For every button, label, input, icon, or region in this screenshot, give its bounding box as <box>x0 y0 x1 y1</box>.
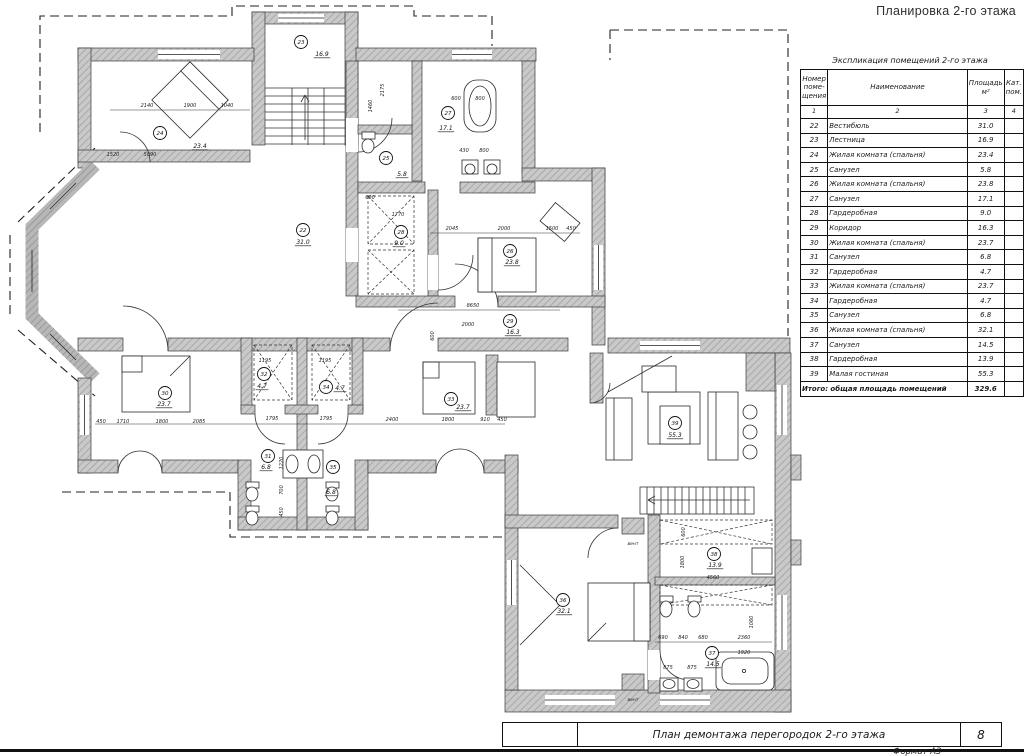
schedule-cell <box>1004 148 1023 163</box>
dim-label: 600 <box>365 195 375 201</box>
room-area-label: 5.8 <box>397 171 407 178</box>
room-num-label: 33 <box>448 397 455 403</box>
schedule-row: 26Жилая комната (спальня)23.8 <box>801 177 1024 192</box>
schedule-cell: Гардеробная <box>828 206 968 221</box>
title-block-empty-cell <box>503 723 578 746</box>
schedule-row: 31Санузел6.8 <box>801 250 1024 265</box>
room-area-label: 23.7 <box>456 404 470 411</box>
col-index: 4 <box>1004 106 1023 119</box>
col-header-number: Номер поме- щения <box>801 70 828 106</box>
schedule-cell: Лестница <box>828 133 968 148</box>
room-label: 2231.0 <box>295 224 311 247</box>
schedule-row: 25Санузел5.8 <box>801 162 1024 177</box>
dim-label: 2175 <box>380 84 386 97</box>
dim-label: 1800 <box>680 556 686 569</box>
dim-label: 1060 <box>749 616 755 629</box>
dim-label: 4560 <box>707 575 720 581</box>
schedule-cell: 16.3 <box>967 221 1004 236</box>
staircase-lower <box>640 487 754 514</box>
schedule-cell <box>1004 206 1023 221</box>
schedule-cell: 37 <box>801 337 828 352</box>
room-label: 324.7 <box>256 368 271 391</box>
dim-label: 450 <box>96 419 106 425</box>
schedule-cell: 55.3 <box>967 367 1004 382</box>
schedule-row: 23Лестница16.9 <box>801 133 1024 148</box>
room-area-label: 32.1 <box>557 608 570 615</box>
schedule-cell: 30 <box>801 235 828 250</box>
schedule-row: 27Санузел17.1 <box>801 191 1024 206</box>
room-area-label: 31.0 <box>296 239 310 246</box>
schedule-cell: Гардеробная <box>828 294 968 309</box>
dim-label: 690 <box>658 635 668 641</box>
room-area-label: 23.8 <box>505 259 519 266</box>
schedule-row: 30Жилая комната (спальня)23.7 <box>801 235 1024 250</box>
schedule-cell: 23 <box>801 133 828 148</box>
dim-label: 600 <box>430 331 436 341</box>
room-label: 255.8 <box>380 152 409 179</box>
schedule-cell: Гардеробная <box>828 352 968 367</box>
schedule-cell: 39 <box>801 367 828 382</box>
vent-label: вент <box>628 698 639 703</box>
schedule-cell: 14.5 <box>967 337 1004 352</box>
schedule-total-row: Итого: общая площадь помещений329.6 <box>801 381 1024 396</box>
room-area-label: 4.7 <box>257 383 267 390</box>
schedule-cell: 29 <box>801 221 828 236</box>
dim-label: 1500 <box>546 226 559 232</box>
room-area-label: 23.4 <box>193 143 207 150</box>
room-area-label: 6.8 <box>326 489 336 496</box>
schedule-cell: 4.7 <box>967 294 1004 309</box>
schedule-cell: 5.8 <box>967 162 1004 177</box>
schedule-row: 32Гардеробная4.7 <box>801 264 1024 279</box>
schedule-cell: Санузел <box>828 162 968 177</box>
schedule-cell: 24 <box>801 148 828 163</box>
schedule-cell: Жилая комната (спальня) <box>828 235 968 250</box>
dim-label: 450 <box>497 417 507 423</box>
schedule-cell: Вестибюль <box>828 119 968 134</box>
schedule-cell: 32.1 <box>967 323 1004 338</box>
schedule-cell: 22 <box>801 119 828 134</box>
room-num-label: 29 <box>507 319 514 325</box>
schedule-cell: Санузел <box>828 337 968 352</box>
dim-label: 800 <box>479 148 489 154</box>
schedule-cell: 25 <box>801 162 828 177</box>
schedule-body: 22Вестибюль31.023Лестница16.924Жилая ком… <box>801 119 1024 397</box>
dim-label: 2000 <box>462 322 475 328</box>
room-num-label: 26 <box>507 249 514 255</box>
schedule-cell: 23.8 <box>967 177 1004 192</box>
room-num-label: 23 <box>298 40 305 46</box>
schedule-row: 35Санузел6.8 <box>801 308 1024 323</box>
schedule-cell: Жилая комната (спальня) <box>828 279 968 294</box>
room-label: 344.7 <box>320 381 347 394</box>
room-num-label: 37 <box>709 651 716 657</box>
schedule-row: 24Жилая комната (спальня)23.4 <box>801 148 1024 163</box>
dim-label: 450 <box>566 226 576 232</box>
col-header-area: Площадь м² <box>967 70 1004 106</box>
schedule-cell: 27 <box>801 191 828 206</box>
dim-label: 1520 <box>107 152 120 158</box>
room-num-label: 28 <box>398 230 405 236</box>
schedule-cell <box>1004 119 1023 134</box>
schedule-cell: 31.0 <box>967 119 1004 134</box>
schedule-row: 28Гардеробная9.0 <box>801 206 1024 221</box>
room-label: 316.8 <box>260 450 275 472</box>
dim-label: 2360 <box>738 635 751 641</box>
schedule-row: 29Коридор16.3 <box>801 221 1024 236</box>
schedule-cell <box>1004 294 1023 309</box>
schedule-cell: 28 <box>801 206 828 221</box>
dim-label: 875 <box>687 665 697 671</box>
schedule-cell: Жилая комната (спальня) <box>828 148 968 163</box>
dim-label: 1795 <box>320 416 333 422</box>
schedule-cell <box>1004 337 1023 352</box>
dim-label: 1800 <box>156 419 169 425</box>
dim-label: 2045 <box>446 226 459 232</box>
dim-label: 1220 <box>279 457 285 470</box>
schedule-cell: 31 <box>801 250 828 265</box>
dim-label: 1040 <box>221 103 234 109</box>
schedule-cell: Жилая комната (спальня) <box>828 177 968 192</box>
room-num-label: 32 <box>261 372 268 378</box>
dim-label: 1900 <box>184 103 197 109</box>
schedule-cell: Санузел <box>828 191 968 206</box>
schedule-cell: Санузел <box>828 308 968 323</box>
schedule-cell: Жилая комната (спальня) <box>828 323 968 338</box>
dim-label: 1920 <box>738 650 751 656</box>
schedule-cell <box>1004 191 1023 206</box>
schedule-cell: 32 <box>801 264 828 279</box>
dim-label: 875 <box>663 665 673 671</box>
dim-label: 450 <box>279 507 285 517</box>
schedule-cell <box>1004 235 1023 250</box>
schedule-cell: 23.7 <box>967 279 1004 294</box>
room-label: 2916.3 <box>504 315 522 337</box>
total-value: 329.6 <box>967 381 1004 396</box>
dim-label: 840 <box>678 635 688 641</box>
schedule-cell <box>1004 162 1023 177</box>
room-area-label: 16.9 <box>315 51 329 58</box>
room-area-label: 23.7 <box>157 401 171 408</box>
room-label: 2717.1 <box>438 107 455 133</box>
dim-label: 1770 <box>392 212 405 218</box>
schedule-cell <box>1004 352 1023 367</box>
schedule-row: 22Вестибюль31.0 <box>801 119 1024 134</box>
dim-label: 1460 <box>368 100 374 113</box>
schedule-cell: 34 <box>801 294 828 309</box>
total-label: Итого: общая площадь помещений <box>801 381 968 396</box>
schedule-cell <box>1004 308 1023 323</box>
room-area-label: 6.8 <box>261 464 271 471</box>
schedule-cell <box>1004 177 1023 192</box>
dim-label: 8650 <box>467 303 480 309</box>
room-num-label: 36 <box>560 598 567 604</box>
room-area-label: 16.3 <box>506 329 520 336</box>
room-num-label: 25 <box>383 156 390 162</box>
room-schedule-table: Номер поме- щения Наименование Площадь м… <box>800 69 1024 397</box>
dim-label: 800 <box>475 96 485 102</box>
dashed-outline-group <box>10 6 788 537</box>
schedule-cell: 17.1 <box>967 191 1004 206</box>
schedule-row: 37Санузел14.5 <box>801 337 1024 352</box>
title-block: План демонтажа перегородок 2-го этажа 8 <box>502 722 1002 747</box>
room-label: 3813.9 <box>707 548 723 570</box>
room-area-label: 9.0 <box>394 240 404 247</box>
col-header-name: Наименование <box>828 70 968 106</box>
schedule-cell <box>1004 381 1023 396</box>
schedule-cell <box>1004 250 1023 265</box>
room-num-label: 30 <box>162 391 169 397</box>
room-num-label: 35 <box>330 465 337 471</box>
room-area-label: 17.1 <box>439 125 452 132</box>
schedule-row: 38Гардеробная13.9 <box>801 352 1024 367</box>
room-num-label: 22 <box>300 228 307 234</box>
room-area-label: 55.3 <box>668 432 682 439</box>
room-num-label: 34 <box>323 385 330 391</box>
sheet-number: 8 <box>960 723 1001 746</box>
schedule-row: 33Жилая комната (спальня)23.7 <box>801 279 1024 294</box>
schedule-cell: 23.4 <box>967 148 1004 163</box>
schedule-cell: 26 <box>801 177 828 192</box>
vent-label: вент <box>628 542 639 547</box>
schedule-cell: 6.8 <box>967 308 1004 323</box>
dim-label: 430 <box>459 148 469 154</box>
schedule-row: 34Гардеробная4.7 <box>801 294 1024 309</box>
dim-label: 910 <box>480 417 490 423</box>
room-num-label: 27 <box>445 111 452 117</box>
schedule-cell: 13.9 <box>967 352 1004 367</box>
schedule-row: 36Жилая комната (спальня)32.1 <box>801 323 1024 338</box>
col-index: 2 <box>828 106 968 119</box>
schedule-cell: 33 <box>801 279 828 294</box>
staircase-upper <box>265 88 345 145</box>
dim-label: 1795 <box>266 416 279 422</box>
col-index: 1 <box>801 106 828 119</box>
schedule-cell: Малая гостиная <box>828 367 968 382</box>
dim-label: 1800 <box>442 417 455 423</box>
schedule-row: 39Малая гостиная55.3 <box>801 367 1024 382</box>
col-header-cat: Кат. пом. <box>1004 70 1023 106</box>
schedule-cell <box>1004 133 1023 148</box>
dim-label: 2000 <box>498 226 511 232</box>
room-area-label: 14.5 <box>706 661 720 668</box>
document-title: План демонтажа перегородок 2-го этажа <box>578 723 960 746</box>
dim-label: 680 <box>698 635 708 641</box>
schedule-cell: 4.7 <box>967 264 1004 279</box>
schedule-cell: 16.9 <box>967 133 1004 148</box>
schedule-cell <box>1004 279 1023 294</box>
dim-label: 600 <box>451 96 461 102</box>
schedule-cell: Гардеробная <box>828 264 968 279</box>
schedule-cell: 23.7 <box>967 235 1004 250</box>
room-area-label: 4.7 <box>335 385 345 392</box>
dim-label: 2085 <box>193 419 206 425</box>
schedule-cell: 35 <box>801 308 828 323</box>
dim-label: 1195 <box>319 358 332 364</box>
room-label: 2423.4 <box>154 127 209 151</box>
schedule-cell <box>1004 323 1023 338</box>
dim-label: 2400 <box>386 417 399 423</box>
dim-label: 700 <box>279 485 285 495</box>
schedule-cell: 36 <box>801 323 828 338</box>
room-label: 2316.9 <box>295 36 331 59</box>
room-label: 3632.1 <box>556 594 572 616</box>
schedule-caption: Экспликация помещений 2-го этажа <box>800 56 1020 65</box>
schedule-cell: Коридор <box>828 221 968 236</box>
schedule-cell <box>1004 221 1023 236</box>
dim-label: 2140 <box>141 103 154 109</box>
room-num-label: 39 <box>672 421 679 427</box>
drawing-sheet: 2316.92423.42717.1255.82231.0289.02623.8… <box>0 0 1024 756</box>
schedule-cell: 6.8 <box>967 250 1004 265</box>
schedule-cell: 38 <box>801 352 828 367</box>
schedule-cell: Санузел <box>828 250 968 265</box>
format-note: Формат А3 <box>893 747 941 756</box>
room-num-label: 31 <box>265 454 272 460</box>
room-num-label: 24 <box>157 131 164 137</box>
dim-label: 5090 <box>144 152 157 158</box>
room-num-label: 38 <box>711 552 718 558</box>
room-area-label: 13.9 <box>708 562 722 569</box>
schedule-cell <box>1004 264 1023 279</box>
page-title: Планировка 2-го этажа <box>876 4 1016 18</box>
dim-label: 600 <box>681 527 687 537</box>
dim-label: 1195 <box>259 358 272 364</box>
dim-label: 1710 <box>117 419 130 425</box>
sheet-frame-line <box>0 749 1024 752</box>
schedule-cell: 9.0 <box>967 206 1004 221</box>
col-index: 3 <box>967 106 1004 119</box>
schedule-cell <box>1004 367 1023 382</box>
